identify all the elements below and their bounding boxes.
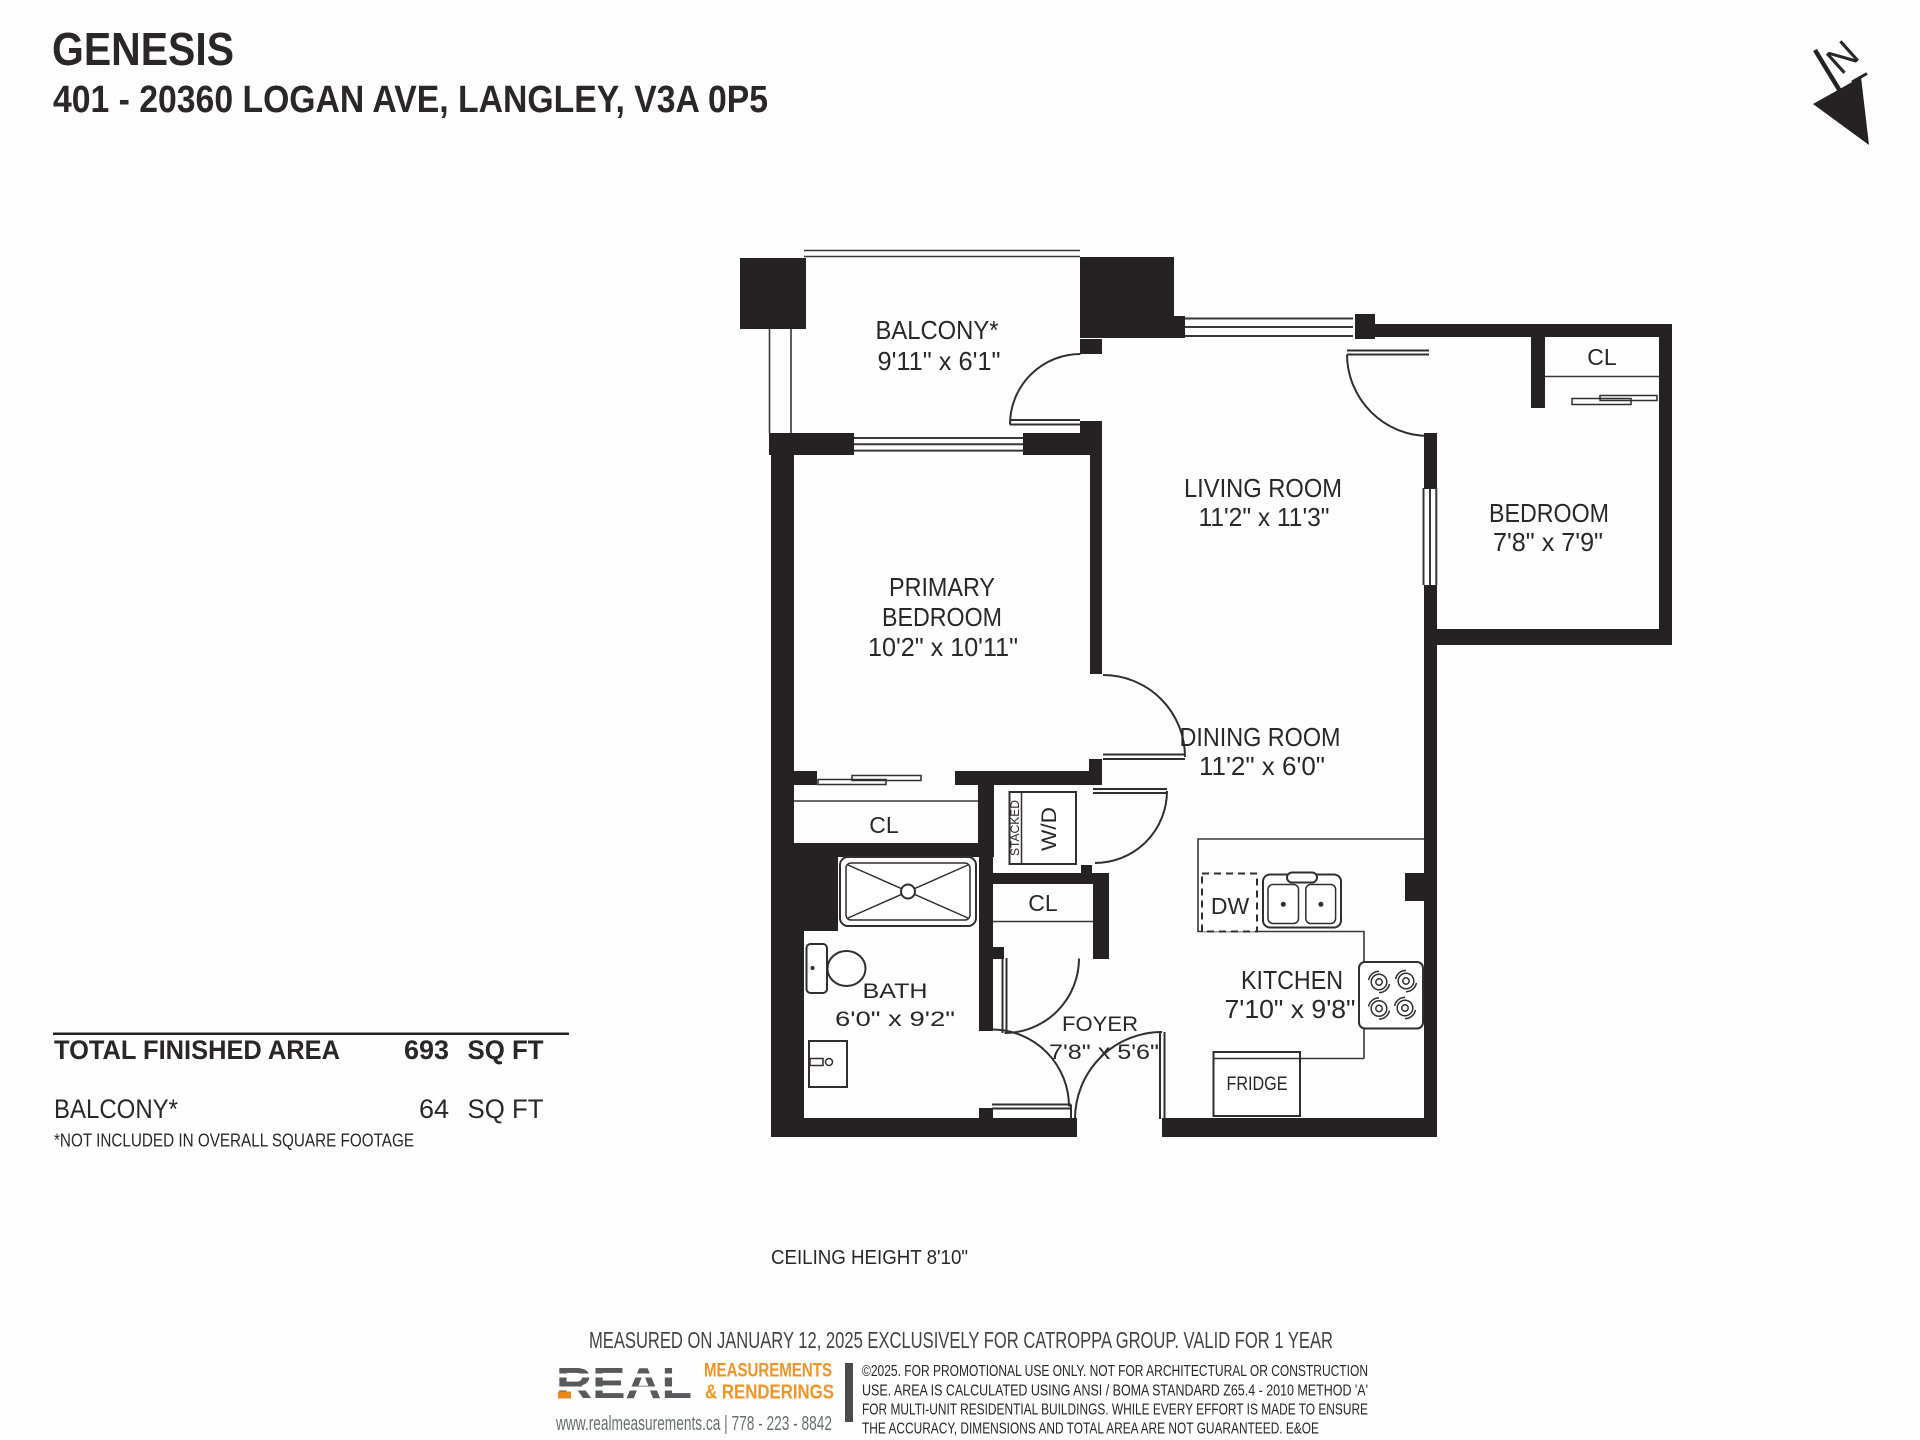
svg-text:11'2" x 11'3": 11'2" x 11'3"	[1199, 502, 1330, 532]
svg-text:USE. AREA IS CALCULATED USING: USE. AREA IS CALCULATED USING ANSI / BOM…	[862, 1383, 1368, 1400]
svg-text:DW: DW	[1211, 893, 1250, 919]
svg-text:BALCONY*: BALCONY*	[54, 1094, 178, 1124]
svg-text:KITCHEN: KITCHEN	[1241, 965, 1343, 995]
svg-text:SQ FT: SQ FT	[468, 1094, 544, 1124]
svg-text:FRIDGE: FRIDGE	[1227, 1074, 1288, 1095]
svg-text:FOR MULTI-UNIT RESIDENTIAL BUI: FOR MULTI-UNIT RESIDENTIAL BUILDINGS. WH…	[862, 1402, 1368, 1419]
svg-text:DINING ROOM: DINING ROOM	[1180, 722, 1341, 752]
svg-text:BEDROOM: BEDROOM	[1489, 498, 1609, 528]
svg-text:7'8" x 7'9": 7'8" x 7'9"	[1493, 527, 1603, 557]
svg-text:CEILING HEIGHT 8'10": CEILING HEIGHT 8'10"	[771, 1247, 968, 1269]
svg-text:7'10" x 9'8": 7'10" x 9'8"	[1225, 994, 1356, 1024]
svg-text:TOTAL FINISHED AREA: TOTAL FINISHED AREA	[54, 1035, 340, 1065]
svg-text:BATH: BATH	[863, 980, 928, 1003]
svg-text:MEASUREMENTS: MEASUREMENTS	[704, 1361, 832, 1382]
svg-text:11'2" x 6'0": 11'2" x 6'0"	[1199, 751, 1325, 781]
svg-text:W/D: W/D	[1038, 807, 1061, 851]
svg-text:CL: CL	[1028, 890, 1058, 916]
svg-text:REAL: REAL	[556, 1359, 692, 1408]
svg-text:www.realmeasurements.ca | 778: www.realmeasurements.ca | 778 - 223 - 88…	[555, 1413, 832, 1435]
svg-text:401 - 20360 LOGAN AVE, LANGLEY: 401 - 20360 LOGAN AVE, LANGLEY, V3A 0P5	[53, 79, 768, 121]
svg-text:PRIMARY: PRIMARY	[889, 572, 995, 602]
svg-text:6'0" x 9'2": 6'0" x 9'2"	[835, 1008, 955, 1031]
svg-text:BEDROOM: BEDROOM	[882, 602, 1002, 632]
svg-text:64: 64	[419, 1094, 449, 1124]
svg-text:10'2" x 10'11": 10'2" x 10'11"	[868, 632, 1018, 662]
svg-text:SQ FT: SQ FT	[468, 1035, 544, 1065]
svg-text:693: 693	[404, 1035, 449, 1065]
svg-text:& RENDERINGS: & RENDERINGS	[705, 1382, 834, 1404]
svg-text:9'11" x 6'1": 9'11" x 6'1"	[878, 346, 1001, 376]
svg-text:*NOT INCLUDED IN OVERALL SQUAR: *NOT INCLUDED IN OVERALL SQUARE FOOTAGE	[54, 1131, 414, 1151]
svg-text:STACKED: STACKED	[1010, 800, 1022, 856]
svg-text:7'8" x 5'6": 7'8" x 5'6"	[1049, 1041, 1159, 1064]
svg-text:GENESIS: GENESIS	[52, 23, 234, 75]
svg-text:©2025. FOR PROMOTIONAL USE ONL: ©2025. FOR PROMOTIONAL USE ONLY. NOT FOR…	[862, 1363, 1368, 1380]
svg-text:MEASURED ON JANUARY 12, 2025 E: MEASURED ON JANUARY 12, 2025 EXCLUSIVELY…	[589, 1327, 1333, 1353]
svg-text:CL: CL	[1587, 344, 1617, 370]
svg-text:LIVING ROOM: LIVING ROOM	[1184, 473, 1342, 503]
svg-text:BALCONY*: BALCONY*	[876, 315, 999, 345]
svg-text:CL: CL	[869, 812, 899, 838]
svg-text:FOYER: FOYER	[1062, 1013, 1138, 1036]
svg-text:THE ACCURACY, DIMENSIONS AND T: THE ACCURACY, DIMENSIONS AND TOTAL AREA …	[862, 1421, 1319, 1438]
